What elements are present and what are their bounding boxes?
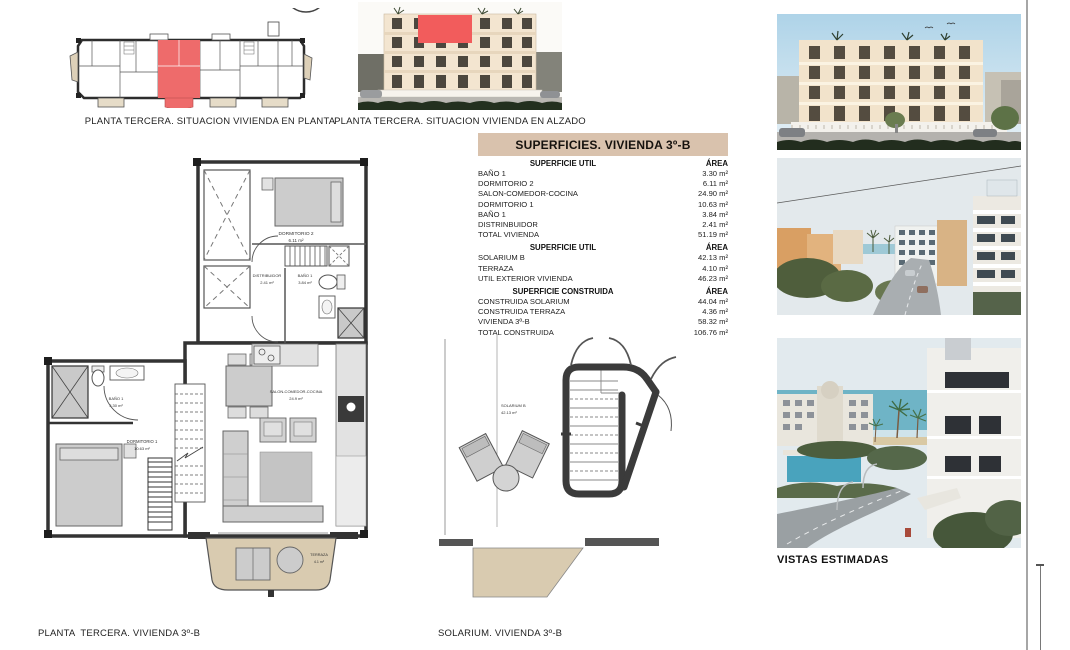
table-row: DORMITORIO 26.11 m² xyxy=(478,179,728,189)
page-border-line xyxy=(1026,0,1028,650)
room-area: 24.9 m² xyxy=(289,396,303,401)
terrace-table xyxy=(277,547,303,573)
terraza-area xyxy=(206,538,336,590)
page-fold-line xyxy=(1040,566,1041,650)
room-area: 2.41 m² xyxy=(260,280,274,285)
room-label: DORMITORIO 2 xyxy=(278,231,313,237)
table-section-header: SUPERFICIE UTIL ÁREA xyxy=(478,156,728,169)
north-circle-icon xyxy=(284,8,322,12)
photo-street-view xyxy=(777,158,1021,315)
pool xyxy=(787,456,861,482)
room-label: BAÑO 1 xyxy=(298,273,313,278)
room-area: 42.13 m² xyxy=(501,410,517,415)
caption-situacion-planta: PLANTA TERCERA. SITUACION VIVIENDA EN PL… xyxy=(60,116,360,127)
highlighted-unit-elevation xyxy=(418,15,472,43)
dining-table xyxy=(226,366,272,406)
table-section-header: SUPERFICIE CONSTRUIDA ÁREA xyxy=(478,284,728,297)
table-row: SALON-COMEDOR-COCINA24.90 m² xyxy=(478,189,728,199)
table-row: TOTAL VIVIENDA51.19 m² xyxy=(478,230,728,240)
apartment-floorplan: DORMITORIO 2 6.11 m² DISTRIBUIDOR 2.41 m… xyxy=(38,156,370,620)
table-row: BAÑO 13.30 m² xyxy=(478,169,728,179)
solarium-plan: SOLARIUM B 42.13 m² xyxy=(425,335,695,600)
surface-table: SUPERFICIES. VIVIENDA 3º-B SUPERFICIE UT… xyxy=(478,133,728,338)
rug xyxy=(260,452,312,502)
toilet-icon xyxy=(319,275,337,289)
surface-table-title: SUPERFICIES. VIVIENDA 3º-B xyxy=(478,133,728,156)
photo-beach-view xyxy=(777,338,1021,548)
table-row: DORMITORIO 110.63 m² xyxy=(478,200,728,210)
room-area: 10.63 m² xyxy=(134,446,150,451)
table-row: BAÑO 13.84 m² xyxy=(478,210,728,220)
table-row: CONSTRUIDA TERRAZA4.36 m² xyxy=(478,307,728,317)
toilet-icon xyxy=(92,370,104,386)
stove-icon xyxy=(254,346,280,364)
room-label: TERRAZA xyxy=(310,553,328,557)
stairwell-wall xyxy=(566,367,623,494)
photo-building-render xyxy=(777,14,1021,150)
brochure-page: PLANTA TERCERA. SITUACION VIVIENDA EN PL… xyxy=(0,0,1070,650)
door-arc xyxy=(658,395,671,431)
railing-diagonal xyxy=(624,392,656,487)
room-label: DORMITORIO 1 xyxy=(127,439,158,444)
room-label: SOLARIUM B xyxy=(501,403,526,408)
table-row: CONSTRUIDA SOLARIUM44.04 m² xyxy=(478,297,728,307)
caption-situacion-alzado: PLANTA TERCERA. SITUACION VIVIENDA EN AL… xyxy=(330,116,590,127)
room-label: SALON-COMEDOR-COCINA xyxy=(270,389,323,394)
table-section-header: SUPERFICIE UTIL ÁREA xyxy=(478,240,728,253)
fold-tick xyxy=(1036,564,1044,566)
room-area: 6.11 m² xyxy=(289,238,304,243)
lower-terrace-area xyxy=(473,548,583,597)
building-elevation xyxy=(358,2,562,110)
table-row: TERRAZA4.10 m² xyxy=(478,264,728,274)
situation-floorplan xyxy=(62,8,322,108)
vistas-estimadas-label: VISTAS ESTIMADAS xyxy=(777,554,889,566)
round-table xyxy=(493,465,519,491)
table-row: DISTRINBUIDOR2.41 m² xyxy=(478,220,728,230)
room-label: DISTRIBUIDOR xyxy=(253,273,282,278)
table-row: VIVIENDA 3º-B58.32 m² xyxy=(478,317,728,327)
table-row: UTIL EXTERIOR VIVIENDA46.23 m² xyxy=(478,274,728,284)
room-area: 3.84 m² xyxy=(298,280,312,285)
caption-solarium: SOLARIUM. VIVIENDA 3º-B xyxy=(438,628,562,639)
caption-floorplan: PLANTA TERCERA. VIVIENDA 3º-B xyxy=(38,628,200,639)
room-area: 4.1 m² xyxy=(314,560,325,564)
table-row: SOLARIUM B42.13 m² xyxy=(478,253,728,263)
room-label: BAÑO 1 xyxy=(109,396,124,401)
